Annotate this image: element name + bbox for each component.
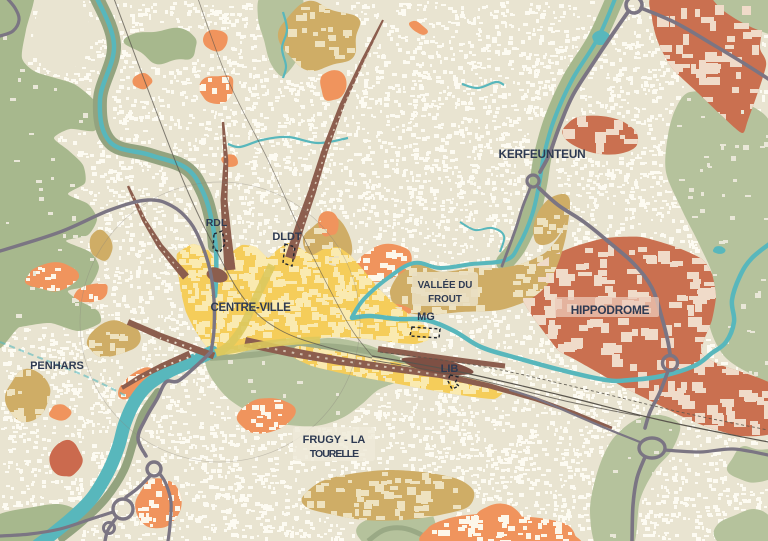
svg-text:VALLÉE DU: VALLÉE DU <box>418 279 473 291</box>
svg-text:LIB: LIB <box>441 363 459 375</box>
svg-text:DLDT: DLDT <box>272 231 302 243</box>
svg-text:KERFEUNTEUN: KERFEUNTEUN <box>499 147 586 161</box>
svg-text:PENHARS: PENHARS <box>30 360 84 372</box>
svg-text:HIPPODROME: HIPPODROME <box>571 303 650 317</box>
svg-text:FRUGY - LA: FRUGY - LA <box>303 434 366 446</box>
svg-text:TOURELLE: TOURELLE <box>310 448 359 460</box>
svg-text:MG: MG <box>417 311 435 323</box>
svg-text:RDL: RDL <box>206 217 228 229</box>
svg-text:CENTRE-VILLE: CENTRE-VILLE <box>210 302 291 314</box>
svg-text:FROUT: FROUT <box>428 294 462 305</box>
